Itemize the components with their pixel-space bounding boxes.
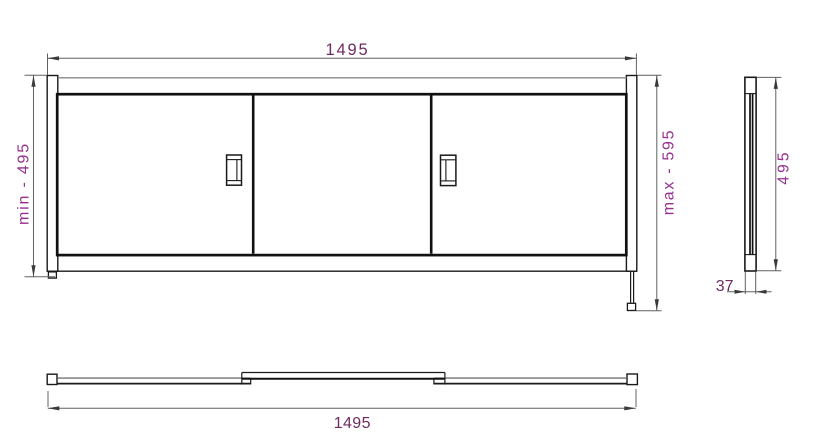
- svg-text:min - 495: min - 495: [16, 142, 33, 225]
- svg-text:1495: 1495: [334, 415, 371, 432]
- svg-text:1495: 1495: [326, 41, 370, 59]
- svg-text:max - 595: max - 595: [661, 129, 678, 215]
- svg-text:37: 37: [716, 278, 734, 295]
- svg-text:495: 495: [776, 149, 793, 184]
